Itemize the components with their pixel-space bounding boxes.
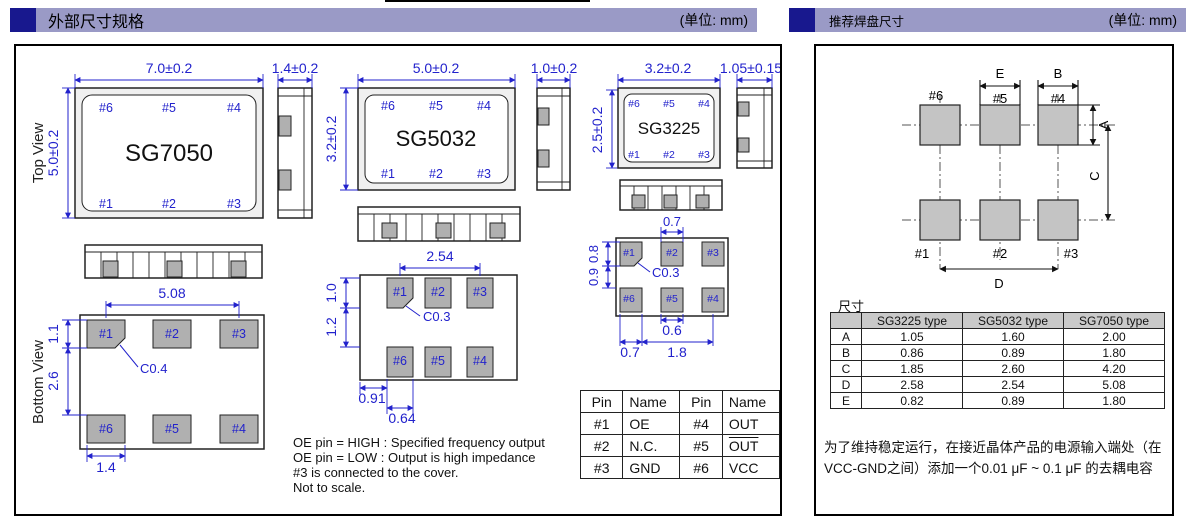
dim-table-header: SG5032 type <box>963 313 1064 329</box>
pin-label: #4 <box>473 354 487 368</box>
dim-table-header-row: SG3225 type SG5032 type SG7050 type <box>831 313 1165 329</box>
dim-width: 3.2±0.2 <box>645 60 692 76</box>
dim-pad-height: 1.1 <box>45 324 61 344</box>
dim-height: 5.0±0.2 <box>45 129 61 176</box>
dim-label-d: D <box>994 276 1003 291</box>
dim-pad-offset: 0.7 <box>620 344 640 360</box>
dim-label-c: C <box>1087 171 1102 180</box>
sg7050-front-view <box>85 245 262 278</box>
pin-table-header: Name <box>722 391 779 413</box>
pad-layout-diagram: #6 #5 #4 #1 #2 #3 E B A C D <box>902 66 1116 291</box>
pin-label: #3 <box>473 285 487 299</box>
pin-label: #6 <box>99 101 113 115</box>
pin-label: #2 <box>429 167 443 181</box>
dim-row-label: E <box>831 393 862 409</box>
dim-pad-pitch: 5.08 <box>158 285 185 301</box>
dim-value: 2.54 <box>963 377 1064 393</box>
pin-cell: #5 <box>680 435 722 457</box>
pin-table-row: #1 OE #4 OUT <box>581 413 780 435</box>
dim-mid-pad-width: 0.6 <box>662 322 682 338</box>
pin-name-cell-inverted-out: OUT <box>722 435 779 457</box>
pin-name-cell: GND <box>623 457 680 479</box>
sg5032-name: SG5032 <box>396 126 477 151</box>
dim-label-a: A <box>1096 120 1111 129</box>
dim-table-header: SG3225 type <box>862 313 963 329</box>
pin-label: #4 <box>698 98 710 110</box>
dim-value: 1.80 <box>1064 345 1165 361</box>
pin-label: #4 <box>227 101 241 115</box>
pin-label: #1 <box>99 327 113 341</box>
dim-pad-pitch: 2.54 <box>426 248 453 264</box>
pin-cell: #6 <box>680 457 722 479</box>
header-square-icon <box>789 8 815 32</box>
oe-notes: OE pin = HIGH : Specified frequency outp… <box>293 435 545 495</box>
sg5032-top-view: SG5032 #6 #5 #4 #1 #2 #3 5.0±0.2 3.2±0.2 <box>323 60 515 190</box>
pin-label: #3 <box>698 149 710 161</box>
right-unit-label: (单位: mm) <box>1109 10 1177 30</box>
dim-label-e: E <box>996 66 1005 81</box>
pin-label: #1 <box>99 197 113 211</box>
pin-label: #1 <box>381 167 395 181</box>
pin-label: #3 <box>477 167 491 181</box>
pin-table-header: Name <box>623 391 680 413</box>
dim-pad-height: 1.0 <box>323 283 339 303</box>
pad-label: #5 <box>993 91 1007 106</box>
pin-cell: #2 <box>581 435 623 457</box>
dim-row-gap: 0.9 <box>586 268 601 286</box>
pin-label: #1 <box>628 149 640 161</box>
dim-table-row: B 0.86 0.89 1.80 <box>831 345 1165 361</box>
pin-name-cell: OE <box>623 413 680 435</box>
pin-label: #6 <box>381 99 395 113</box>
dim-thickness: 1.0±0.2 <box>531 60 578 76</box>
dim-pad-width: 0.64 <box>388 410 415 426</box>
pin-label: #5 <box>663 98 675 110</box>
pin-label: #5 <box>429 99 443 113</box>
dim-value: 4.20 <box>1064 361 1165 377</box>
dim-value: 2.58 <box>862 377 963 393</box>
pad-layout-panel: #6 #5 #4 #1 #2 #3 E B A C D 尺寸 SG3225 ty… <box>814 44 1174 516</box>
pad-label: #4 <box>1051 91 1065 106</box>
sg5032-side-view: 1.0±0.2 <box>531 60 578 190</box>
sg3225-side-view: 1.05±0.15 <box>720 60 780 168</box>
pin-label: #5 <box>162 101 176 115</box>
pin-label: #6 <box>99 422 113 436</box>
dim-chamfer: C0.3 <box>423 309 450 324</box>
pin-label: #6 <box>393 354 407 368</box>
note-line: Not to scale. <box>293 480 545 495</box>
pin-cell: #4 <box>680 413 722 435</box>
dim-table-header: SG7050 type <box>1064 313 1165 329</box>
pin-label: #6 <box>628 98 640 110</box>
dim-value: 2.60 <box>963 361 1064 377</box>
pin-cell: #3 <box>581 457 623 479</box>
pin-label: #1 <box>393 285 407 299</box>
pin-label: #4 <box>232 422 246 436</box>
sg3225-height-dim: 2.5±0.2 <box>589 90 618 168</box>
dim-width: 7.0±0.2 <box>146 60 193 76</box>
dim-chamfer: C0.3 <box>652 265 679 280</box>
pin-table-header: Pin <box>680 391 722 413</box>
dim-row-label: B <box>831 345 862 361</box>
sg3225-front-view <box>620 180 722 210</box>
pin-label: #4 <box>707 293 719 305</box>
pin-table-row: #2 N.C. #5 OUT <box>581 435 780 457</box>
right-section-header: 推荐焊盘尺寸 (单位: mm) <box>789 8 1186 32</box>
dim-chamfer: C0.4 <box>140 361 167 376</box>
pin-table-row: #3 GND #6 VCC <box>581 457 780 479</box>
header-square-icon <box>10 8 36 32</box>
sg7050-side-view: 1.4±0.2 <box>272 60 319 218</box>
dim-pad-offset: 0.91 <box>358 390 385 406</box>
sg3225-top-view: SG3225 #6 #5 #4 #1 #2 #3 3.2±0.2 <box>618 60 720 168</box>
pin-label: #1 <box>623 247 635 259</box>
pin-label: #2 <box>165 327 179 341</box>
outline-drawing-panel: Top View Bottom View SG7050 #6 #5 #4 #1 … <box>14 44 782 516</box>
dim-value: 2.00 <box>1064 329 1165 345</box>
pin-label: #4 <box>477 99 491 113</box>
dim-label-b: B <box>1054 66 1063 81</box>
pin-label: #6 <box>623 293 635 305</box>
pad-label: #1 <box>915 246 929 261</box>
dim-pad-pitch: 1.8 <box>667 344 687 360</box>
dim-pad-width: 1.4 <box>96 459 116 475</box>
dim-row-gap: 1.2 <box>323 317 339 337</box>
dim-value: 1.60 <box>963 329 1064 345</box>
note-line: OE pin = LOW : Output is high impedance <box>293 450 545 465</box>
pad-label: #3 <box>1064 246 1078 261</box>
left-section-header: 外部尺寸规格 (单位: mm) <box>10 8 757 32</box>
dim-table-row: E 0.82 0.89 1.80 <box>831 393 1165 409</box>
pin-label: #3 <box>227 197 241 211</box>
datasheet-page: { "left": { "title": "外部尺寸规格", "unit": "… <box>0 0 1194 532</box>
pin-label: #3 <box>707 247 719 259</box>
dim-top-pad-width: 0.7 <box>663 214 681 229</box>
sg5032-front-view <box>358 207 520 241</box>
sg5032-bottom-view: #1 #2 #3 #6 #5 #4 2.54 1.0 1.2 C0.3 0.91… <box>323 248 517 426</box>
dim-row-gap: 2.6 <box>45 371 61 391</box>
dim-pad-height: 0.8 <box>586 245 601 263</box>
note-line: OE pin = HIGH : Specified frequency outp… <box>293 435 545 450</box>
dim-table-header <box>831 313 862 329</box>
dim-value: 1.85 <box>862 361 963 377</box>
sg7050-name: SG7050 <box>125 140 213 167</box>
pin-name-cell: N.C. <box>623 435 680 457</box>
pin-label: #5 <box>666 293 678 305</box>
dim-width: 5.0±0.2 <box>413 60 460 76</box>
dim-table-row: C 1.85 2.60 4.20 <box>831 361 1165 377</box>
pin-label: #2 <box>162 197 176 211</box>
left-section-title: 外部尺寸规格 <box>48 8 144 32</box>
dim-table-row: D 2.58 2.54 5.08 <box>831 377 1165 393</box>
pin-label: #2 <box>431 285 445 299</box>
pin-assignment-table: Pin Name Pin Name #1 OE #4 OUT #2 N.C. #… <box>580 390 780 479</box>
dim-row-label: C <box>831 361 862 377</box>
pin-label: #5 <box>431 354 445 368</box>
dim-table-row: A 1.05 1.60 2.00 <box>831 329 1165 345</box>
pin-label: #3 <box>232 327 246 341</box>
dim-row-label: A <box>831 329 862 345</box>
dim-value: 1.05 <box>862 329 963 345</box>
pin-cell: #1 <box>581 413 623 435</box>
sg3225-name: SG3225 <box>638 119 700 138</box>
top-rule <box>385 0 590 2</box>
pin-table-header: Pin <box>581 391 623 413</box>
dim-value: 1.80 <box>1064 393 1165 409</box>
dim-value: 0.82 <box>862 393 963 409</box>
sg3225-bottom-view: #1 #2 #3 #6 #5 #4 0.7 0.8 0.9 C0.3 0.6 0… <box>586 214 728 360</box>
sg7050-bottom-view: #1 #2 #3 #6 #5 #4 5.08 1.1 2.6 C0.4 1.4 <box>45 285 264 475</box>
left-unit-label: (单位: mm) <box>680 10 748 30</box>
dim-height: 2.5±0.2 <box>589 106 605 153</box>
pin-label: #2 <box>666 247 678 259</box>
dim-thickness: 1.05±0.15 <box>720 60 780 76</box>
dim-value: 0.86 <box>862 345 963 361</box>
dim-row-label: D <box>831 377 862 393</box>
pad-dimension-table: SG3225 type SG5032 type SG7050 type A 1.… <box>830 312 1165 409</box>
note-line: #3 is connected to the cover. <box>293 465 545 480</box>
dim-value: 0.89 <box>963 345 1064 361</box>
pin-table-header-row: Pin Name Pin Name <box>581 391 780 413</box>
pad-label: #2 <box>993 246 1007 261</box>
dim-thickness: 1.4±0.2 <box>272 60 319 76</box>
dim-height: 3.2±0.2 <box>323 115 339 162</box>
sg7050-top-view: SG7050 #6 #5 #4 #1 #2 #3 7.0±0.2 5.0±0.2 <box>45 60 263 218</box>
decoupling-capacitor-note: 为了维持稳定运行，在接近晶体产品的电源输入端处（在VCC-GND之间）添加一个0… <box>824 438 1166 480</box>
pin-label: #5 <box>165 422 179 436</box>
pin-name-cell: OUT <box>722 413 779 435</box>
pad-label: #6 <box>929 88 943 103</box>
dim-value: 5.08 <box>1064 377 1165 393</box>
pin-label: #2 <box>663 149 675 161</box>
dim-value: 0.89 <box>963 393 1064 409</box>
pin-name-cell: VCC <box>722 457 779 479</box>
right-section-title: 推荐焊盘尺寸 <box>829 11 904 30</box>
